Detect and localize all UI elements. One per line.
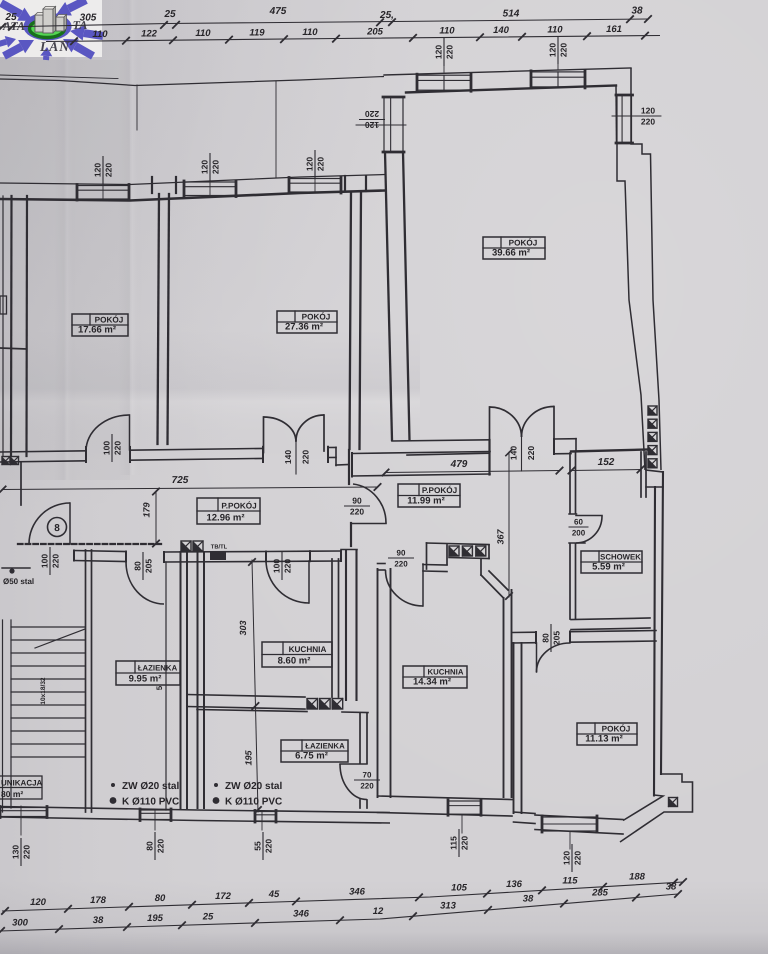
svg-text:TB/TL: TB/TL	[211, 544, 228, 551]
svg-text:313: 313	[440, 900, 457, 911]
svg-text:SCHOWEK: SCHOWEK	[600, 553, 641, 562]
svg-text:346: 346	[349, 886, 366, 897]
svg-text:136: 136	[506, 879, 523, 890]
svg-text:80: 80	[133, 561, 143, 571]
svg-text:100: 100	[102, 441, 112, 455]
svg-text:90: 90	[352, 496, 362, 506]
svg-text:220: 220	[526, 446, 536, 460]
svg-text:120: 120	[641, 106, 655, 116]
svg-text:161: 161	[606, 24, 622, 35]
svg-text:11.13 m²: 11.13 m²	[585, 734, 623, 745]
svg-text:80: 80	[155, 893, 166, 904]
svg-text:11.99 m²: 11.99 m²	[407, 496, 445, 507]
svg-text:P.POKÓJ: P.POKÓJ	[422, 485, 457, 495]
svg-text:38: 38	[523, 894, 534, 905]
svg-text:200: 200	[572, 529, 586, 538]
svg-text:285: 285	[591, 888, 609, 899]
svg-text:300: 300	[12, 917, 29, 928]
svg-text:220: 220	[113, 441, 123, 455]
svg-text:140: 140	[493, 25, 510, 36]
svg-text:120: 120	[30, 897, 47, 908]
svg-text:305: 305	[80, 13, 97, 24]
svg-text:38: 38	[93, 915, 104, 926]
svg-text:45: 45	[268, 889, 280, 900]
svg-text:P.POKÓJ: P.POKÓJ	[221, 501, 256, 511]
svg-text:119: 119	[249, 27, 265, 38]
svg-text:120: 120	[93, 163, 103, 177]
svg-text:188: 188	[629, 872, 646, 883]
svg-text:140: 140	[283, 450, 293, 464]
svg-text:55: 55	[253, 841, 263, 851]
svg-text:9.95 m²: 9.95 m²	[129, 674, 162, 685]
svg-text:220: 220	[360, 782, 374, 791]
svg-text:17.66 m²: 17.66 m²	[78, 325, 116, 336]
svg-text:25: 25	[163, 9, 176, 20]
svg-text:10x18/32: 10x18/32	[40, 677, 47, 704]
svg-text:110: 110	[547, 25, 563, 36]
svg-text:25,: 25,	[379, 10, 394, 21]
svg-text:220: 220	[283, 559, 293, 573]
svg-text:220: 220	[559, 43, 569, 57]
svg-text:346: 346	[293, 908, 310, 919]
svg-text:39.66 m²: 39.66 m²	[492, 248, 530, 259]
svg-text:220: 220	[350, 507, 364, 517]
svg-text:475: 475	[269, 6, 287, 17]
svg-text:POKÓJ: POKÓJ	[302, 312, 331, 322]
svg-text:220: 220	[104, 163, 114, 177]
svg-text:5: 5	[155, 685, 164, 690]
svg-text:POKÓJ: POKÓJ	[602, 724, 631, 734]
svg-text:110: 110	[302, 27, 318, 38]
svg-text:220: 220	[460, 836, 470, 850]
svg-text:220: 220	[445, 45, 455, 59]
svg-text:220: 220	[641, 117, 655, 127]
svg-text:220: 220	[264, 839, 274, 853]
svg-text:110: 110	[92, 29, 108, 40]
svg-text:KUCHNIA: KUCHNIA	[428, 668, 464, 677]
svg-text:120: 120	[365, 120, 379, 130]
svg-text:195: 195	[244, 750, 254, 766]
svg-text:8.60 m²: 8.60 m²	[278, 656, 311, 667]
svg-text:25: 25	[202, 911, 214, 922]
svg-text:POKÓJ: POKÓJ	[509, 238, 538, 248]
svg-text:220: 220	[22, 845, 32, 859]
svg-text:80: 80	[145, 841, 155, 851]
svg-text:367: 367	[496, 529, 506, 545]
svg-text:ŁAZIENKA: ŁAZIENKA	[138, 664, 178, 673]
svg-text:479: 479	[450, 459, 468, 470]
svg-text:80: 80	[541, 633, 551, 643]
svg-text:205: 205	[144, 559, 154, 573]
svg-text:172: 172	[215, 891, 232, 902]
svg-text:122: 122	[141, 28, 158, 39]
svg-text:90: 90	[397, 549, 406, 558]
svg-text:ZW Ø20 stal: ZW Ø20 stal	[122, 781, 179, 792]
svg-text:25: 25	[4, 12, 17, 23]
svg-text:70: 70	[363, 771, 372, 780]
svg-text:100: 100	[272, 559, 282, 573]
svg-text:220: 220	[573, 851, 583, 865]
svg-text:5.59 m²: 5.59 m²	[592, 562, 625, 573]
svg-text:ZW Ø20 stal: ZW Ø20 stal	[225, 781, 282, 792]
svg-text:178: 178	[90, 895, 107, 906]
svg-text:205: 205	[366, 26, 384, 37]
svg-text:80 m²: 80 m²	[1, 789, 23, 799]
svg-text:120: 120	[200, 160, 210, 174]
svg-text:8: 8	[54, 523, 60, 534]
svg-text:60: 60	[574, 518, 583, 527]
svg-text:14.34 m²: 14.34 m²	[413, 677, 451, 688]
svg-text:130: 130	[11, 845, 21, 859]
svg-text:110: 110	[439, 26, 455, 37]
svg-text:12: 12	[373, 906, 384, 917]
svg-text:KUCHNIA: KUCHNIA	[289, 645, 327, 654]
svg-text:K Ø110 PVC: K Ø110 PVC	[122, 797, 179, 808]
svg-text:110: 110	[195, 28, 211, 39]
svg-text:303: 303	[238, 620, 248, 635]
svg-text:152: 152	[598, 457, 615, 468]
svg-text:120: 120	[305, 157, 315, 171]
svg-text:UNIKACJA: UNIKACJA	[1, 779, 43, 788]
svg-text:105: 105	[451, 882, 468, 893]
svg-text:Ø50 stal: Ø50 stal	[3, 577, 34, 586]
svg-text:K Ø110 PVC: K Ø110 PVC	[225, 797, 282, 808]
svg-text:27.36 m²: 27.36 m²	[285, 322, 323, 333]
svg-text:220: 220	[316, 157, 326, 171]
svg-text:38: 38	[666, 882, 677, 893]
svg-text:140: 140	[509, 446, 519, 460]
svg-text:205: 205	[552, 631, 562, 645]
svg-text:100: 100	[40, 554, 50, 568]
svg-text:179: 179	[142, 502, 152, 517]
svg-text:120: 120	[562, 851, 572, 865]
svg-text:725: 725	[172, 475, 189, 486]
svg-text:220: 220	[211, 160, 221, 174]
svg-text:115: 115	[449, 836, 459, 850]
svg-text:220: 220	[156, 839, 166, 853]
svg-text:220: 220	[301, 450, 311, 464]
svg-text:220: 220	[51, 554, 61, 568]
svg-text:120: 120	[548, 43, 558, 57]
svg-text:12.96 m²: 12.96 m²	[206, 513, 244, 524]
svg-text:220: 220	[365, 109, 379, 119]
svg-text:120: 120	[434, 45, 444, 59]
svg-text:220: 220	[394, 560, 408, 569]
svg-text:514: 514	[503, 9, 520, 20]
svg-text:115: 115	[562, 876, 578, 887]
svg-text:195: 195	[147, 913, 164, 924]
svg-text:6.75 m²: 6.75 m²	[295, 751, 328, 762]
svg-text:POKÓJ: POKÓJ	[95, 315, 124, 325]
svg-text:38: 38	[631, 6, 643, 17]
svg-text:ŁAZIENKA: ŁAZIENKA	[305, 742, 345, 751]
